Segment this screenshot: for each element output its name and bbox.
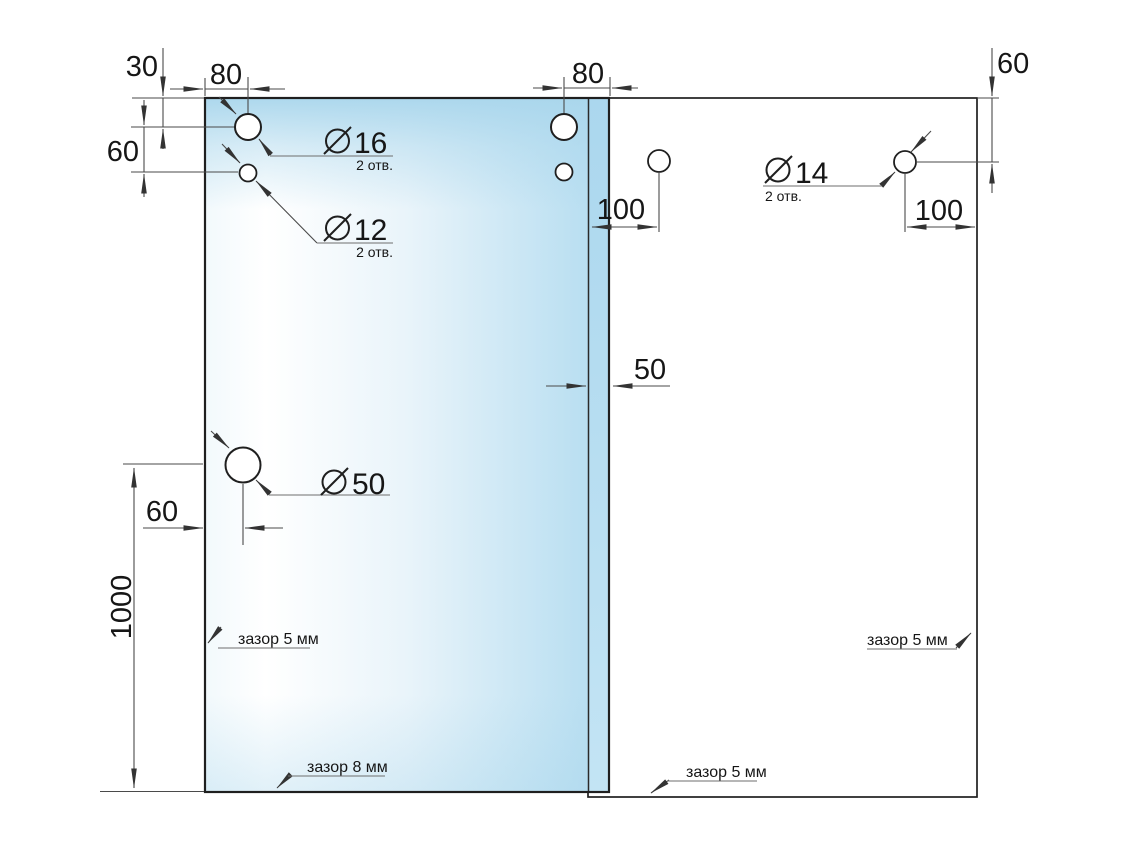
hole-dia14-left (648, 150, 670, 172)
hole-count-12: 2 отв. (356, 244, 393, 260)
dim-label-80-middle: 80 (572, 58, 604, 90)
dimension-100-right: 100 (905, 173, 975, 232)
dim-label-100-left: 100 (597, 194, 645, 226)
hole-count-14: 2 отв. (765, 188, 802, 204)
dim-label-30: 30 (126, 51, 158, 83)
dim-label-100-right: 100 (915, 195, 963, 227)
dim-label-60-lower-left: 60 (146, 496, 178, 528)
hole-dia12-left (240, 165, 257, 182)
hole-dia16-mid (551, 114, 577, 140)
dim-label-1000: 1000 (106, 575, 138, 640)
hole-label-12: 12 (354, 214, 387, 247)
technical-drawing-canvas: 30 80 60 80 60 100 (0, 0, 1136, 850)
hole-dia16-left (235, 114, 261, 140)
left-glass-panel-sheen (205, 98, 609, 792)
gap-note-bottom-middle: зазор 5 мм (651, 764, 767, 793)
gap-label-left: зазор 5 мм (238, 631, 319, 648)
dim-label-80-left: 80 (210, 59, 242, 91)
gap-label-bottom-left: зазор 8 мм (307, 759, 388, 776)
hole-dia12-mid (556, 164, 573, 181)
hole-label-50: 50 (352, 468, 385, 501)
gap-label-right: зазор 5 мм (867, 632, 948, 649)
dim-label-60-top-left: 60 (107, 136, 139, 168)
dimension-60-top-right: 60 (916, 48, 1029, 193)
hole-label-14: 14 (795, 157, 828, 190)
dim-label-50-overlap: 50 (634, 354, 666, 386)
hole-dia50 (226, 448, 261, 483)
hole-label-16: 16 (354, 127, 387, 160)
gap-note-right: зазор 5 мм (867, 632, 971, 649)
hole-count-16: 2 отв. (356, 157, 393, 173)
dim-label-60-top-right: 60 (997, 48, 1029, 80)
gap-label-bottom-middle: зазор 5 мм (686, 764, 767, 781)
glass-panels-drawing: 30 80 60 80 60 100 (0, 0, 1136, 850)
diameter-symbol-icon (765, 156, 792, 183)
hole-dia14-right (894, 151, 916, 173)
